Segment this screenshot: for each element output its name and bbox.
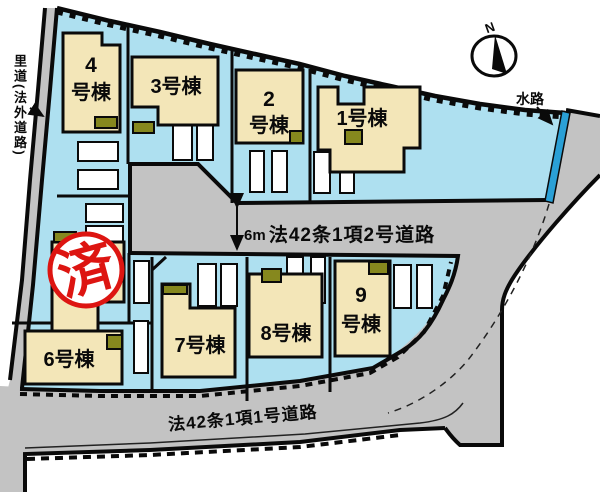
site-plan-canvas: 4 号棟 3号棟 2 号棟 1号棟 6号棟 7号棟 8号棟 9 号棟 法42条1… — [0, 0, 600, 502]
entrance-mark — [95, 117, 117, 128]
parking-space — [417, 265, 432, 308]
parking-space — [86, 204, 123, 222]
sold-stamp: 済 — [50, 232, 122, 308]
parking-space — [134, 261, 149, 303]
entrance-mark — [133, 122, 154, 133]
north-compass: N — [472, 19, 516, 76]
parking-space — [134, 321, 148, 373]
entrance-mark — [345, 130, 362, 144]
building-4-label-line2: 号棟 — [71, 80, 112, 104]
building-9-label-line2: 号棟 — [341, 312, 382, 336]
building-4-label-line1: 4 — [85, 54, 97, 77]
parking-space — [198, 264, 216, 306]
building-1-label: 1号棟 — [336, 106, 388, 130]
waterway-label: 水路 — [516, 91, 545, 107]
entrance-mark — [163, 285, 187, 294]
parking-space — [394, 265, 411, 308]
parking-space — [78, 170, 118, 189]
road-width-label: 6m — [244, 227, 266, 244]
building-9-label-line1: 9 — [355, 284, 367, 307]
parking-space — [314, 152, 330, 193]
parking-space — [250, 151, 264, 192]
site-plan-map: 4 号棟 3号棟 2 号棟 1号棟 6号棟 7号棟 8号棟 9 号棟 法42条1… — [0, 0, 600, 502]
building-9 — [335, 261, 390, 356]
parking-space — [272, 151, 287, 192]
entrance-mark — [290, 131, 303, 143]
building-6-label: 6号棟 — [43, 347, 95, 371]
building-8-label: 8号棟 — [260, 321, 312, 345]
building-3-label: 3号棟 — [150, 74, 202, 98]
middle-road-label: 法42条1項2号道路 — [269, 223, 435, 246]
building-2-label-line2: 号棟 — [249, 113, 290, 137]
left-road-label: 里道(法外道路) — [13, 54, 26, 157]
parking-space — [221, 264, 237, 306]
building-2-label-line1: 2 — [263, 88, 275, 111]
building-7-label: 7号棟 — [174, 333, 226, 357]
entrance-mark — [107, 335, 122, 349]
parking-space — [78, 142, 118, 161]
compass-north-label: N — [483, 19, 497, 36]
entrance-mark — [262, 269, 281, 282]
entrance-mark — [369, 262, 388, 274]
